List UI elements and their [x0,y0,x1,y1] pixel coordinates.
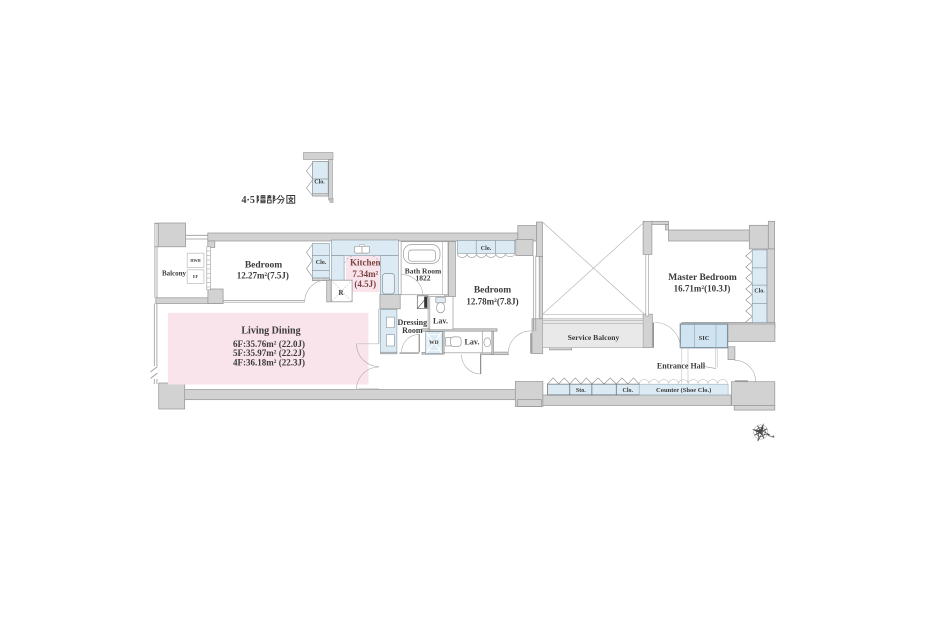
svg-text:Bedroom: Bedroom [245,261,282,271]
svg-text:Room: Room [402,326,423,335]
svg-text:EF: EF [193,274,199,279]
svg-text:Bedroom: Bedroom [474,286,511,296]
svg-text:Counter (Shoe Clo.): Counter (Shoe Clo.) [656,387,711,394]
svg-text:1822: 1822 [416,273,431,282]
svg-text:Master Bedroom: Master Bedroom [668,273,737,283]
svg-text:Clo.: Clo. [481,246,492,252]
svg-text:WD: WD [429,340,439,346]
svg-text:Service Balcony: Service Balcony [568,333,620,342]
svg-text:Sto.: Sto. [576,388,586,394]
svg-text:Clo.: Clo. [314,180,325,186]
svg-text:16.71m²(10.3J): 16.71m²(10.3J) [674,284,731,294]
svg-text:Clo.: Clo. [623,388,634,394]
svg-text:SIC: SIC [699,335,710,342]
svg-text:Entrance Hall: Entrance Hall [657,362,706,371]
svg-text:4·5: 4·5 [242,195,255,206]
svg-text:(4.5J): (4.5J) [354,279,376,289]
svg-text:Living Dining: Living Dining [241,326,300,337]
svg-text:7.34m²: 7.34m² [352,269,378,279]
svg-text:Kitchen: Kitchen [350,257,381,267]
svg-text:HWH: HWH [190,258,201,263]
svg-text:Clo.: Clo. [754,288,765,294]
svg-text:Clo.: Clo. [316,260,327,266]
svg-text:Balcony: Balcony [162,270,187,278]
svg-text:12.27m²(7.5J): 12.27m²(7.5J) [237,270,289,280]
svg-text:4F:36.18m² (22.3J): 4F:36.18m² (22.3J) [233,357,305,367]
svg-text:12.78m²(7.8J): 12.78m²(7.8J) [466,297,518,307]
svg-text:Lav.: Lav. [433,317,448,326]
svg-text:Lav.: Lav. [465,338,480,347]
